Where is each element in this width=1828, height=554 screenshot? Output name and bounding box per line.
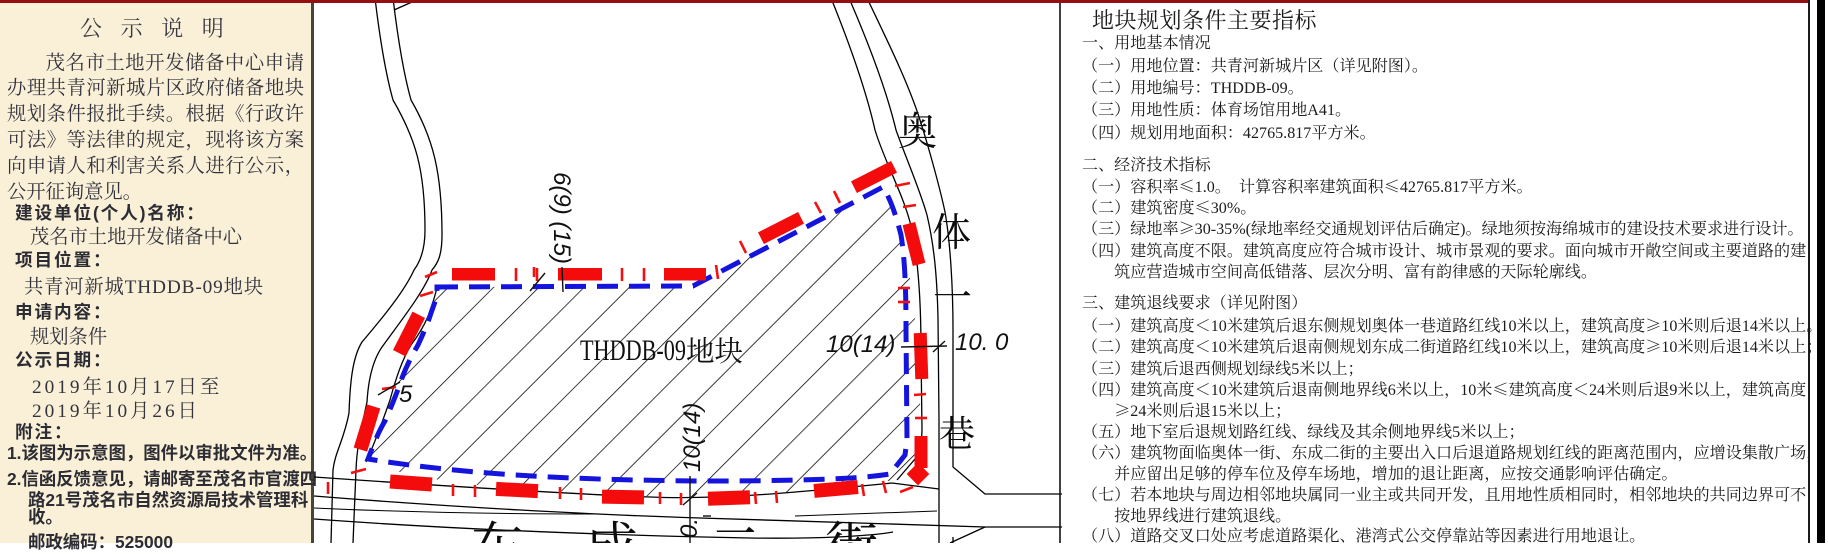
- svg-text:成: 成: [585, 519, 638, 543]
- svg-text:巷: 巷: [939, 414, 975, 454]
- svg-text:一: 一: [933, 277, 972, 320]
- svg-text:地块: 地块: [686, 336, 743, 368]
- svg-text:体: 体: [932, 212, 971, 255]
- svg-text:东: 东: [471, 519, 524, 543]
- svg-text:街: 街: [825, 519, 878, 543]
- svg-text:5: 5: [399, 381, 413, 408]
- svg-text:0.: 0.: [676, 518, 703, 538]
- svg-text:10. 0: 10. 0: [955, 329, 1009, 356]
- svg-text:THDDB-09: THDDB-09: [580, 334, 686, 367]
- svg-text:10(14): 10(14): [679, 403, 706, 472]
- svg-text:6(9) (15): 6(9) (15): [548, 172, 575, 264]
- svg-text:二: 二: [709, 519, 762, 543]
- svg-text:奥: 奥: [898, 111, 937, 154]
- svg-text:10(14): 10(14): [826, 331, 895, 358]
